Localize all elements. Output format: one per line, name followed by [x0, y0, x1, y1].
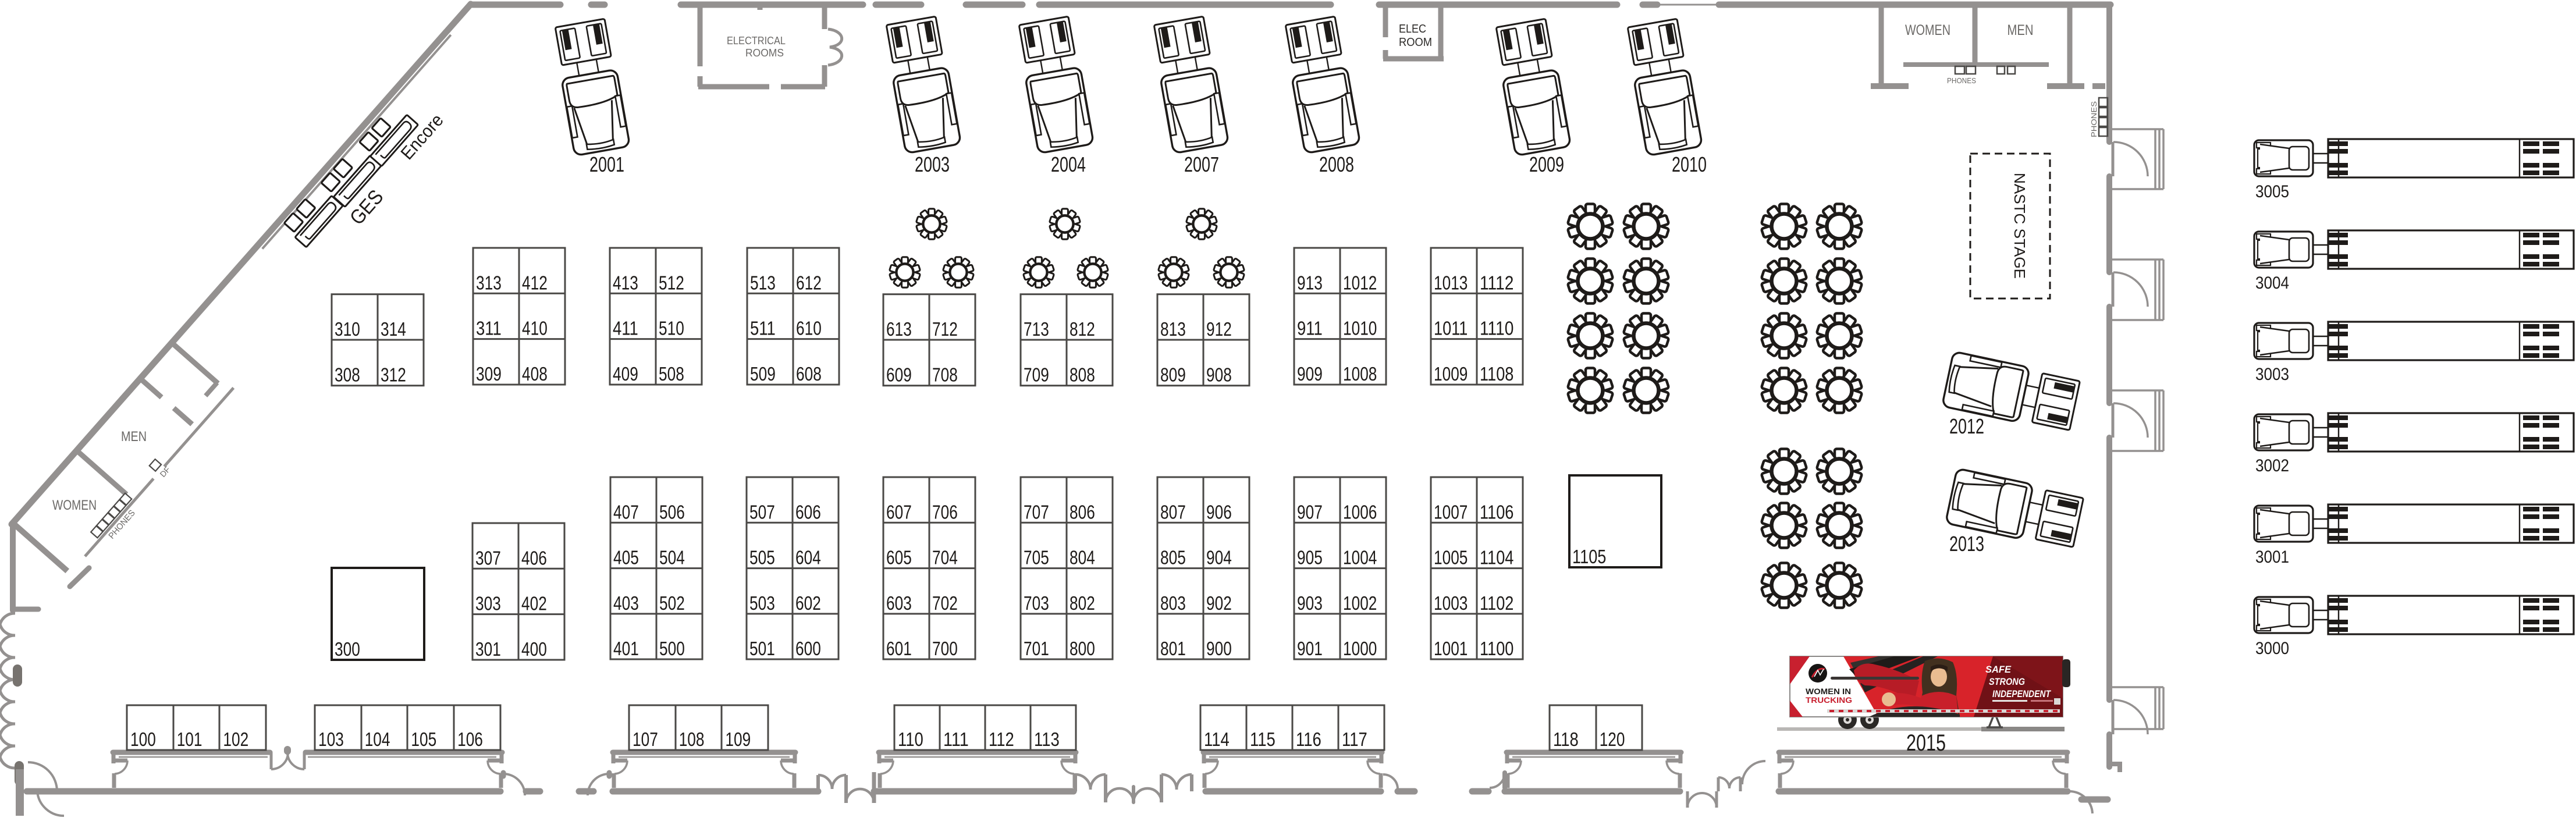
svg-text:601: 601 [886, 638, 912, 659]
svg-text:2003: 2003 [915, 152, 950, 176]
svg-text:604: 604 [795, 547, 821, 568]
svg-text:300: 300 [335, 638, 360, 660]
svg-text:812: 812 [1070, 318, 1095, 340]
svg-text:2001: 2001 [589, 152, 624, 176]
svg-text:907: 907 [1297, 501, 1323, 523]
svg-text:813: 813 [1160, 318, 1186, 340]
svg-text:806: 806 [1070, 501, 1095, 523]
svg-text:600: 600 [795, 638, 821, 659]
svg-text:407: 407 [613, 501, 639, 523]
svg-text:1108: 1108 [1480, 363, 1513, 385]
svg-text:311: 311 [476, 318, 502, 339]
svg-text:612: 612 [796, 272, 822, 293]
svg-text:912: 912 [1206, 318, 1232, 340]
svg-text:3000: 3000 [2255, 639, 2289, 658]
svg-text:511: 511 [750, 318, 776, 339]
svg-text:112: 112 [989, 728, 1014, 750]
svg-text:905: 905 [1297, 547, 1323, 568]
svg-text:801: 801 [1160, 638, 1186, 659]
svg-text:1104: 1104 [1480, 547, 1513, 568]
svg-text:504: 504 [659, 547, 685, 568]
svg-text:406: 406 [521, 547, 547, 568]
svg-text:510: 510 [659, 318, 684, 339]
svg-text:WOMEN: WOMEN [52, 497, 97, 513]
svg-text:503: 503 [749, 592, 775, 614]
svg-text:902: 902 [1206, 592, 1232, 614]
svg-text:118: 118 [1553, 728, 1579, 750]
svg-text:1100: 1100 [1480, 638, 1513, 659]
svg-text:101: 101 [177, 728, 202, 750]
svg-text:609: 609 [886, 364, 912, 385]
svg-text:1012: 1012 [1343, 272, 1377, 293]
svg-text:913: 913 [1297, 272, 1323, 293]
svg-text:606: 606 [795, 501, 821, 523]
svg-text:WOMEN IN: WOMEN IN [1806, 687, 1851, 696]
svg-text:402: 402 [521, 593, 547, 614]
svg-text:ROOMS: ROOMS [745, 47, 784, 59]
svg-text:408: 408 [522, 363, 548, 385]
svg-text:1009: 1009 [1434, 363, 1468, 385]
svg-text:1002: 1002 [1343, 592, 1377, 614]
svg-text:TRUCKING: TRUCKING [1806, 695, 1852, 705]
svg-text:705: 705 [1024, 547, 1049, 568]
svg-text:607: 607 [886, 501, 912, 523]
svg-text:901: 901 [1297, 638, 1323, 659]
svg-text:1001: 1001 [1434, 638, 1468, 659]
svg-text:106: 106 [457, 728, 483, 750]
svg-text:805: 805 [1160, 547, 1186, 568]
svg-text:120: 120 [1600, 728, 1625, 750]
svg-text:808: 808 [1070, 364, 1095, 385]
svg-text:114: 114 [1204, 728, 1230, 750]
svg-text:2013: 2013 [1949, 532, 1984, 556]
svg-text:1000: 1000 [1343, 638, 1377, 659]
svg-text:MEN: MEN [2007, 22, 2034, 38]
svg-text:1004: 1004 [1343, 547, 1377, 568]
svg-text:403: 403 [613, 592, 639, 614]
svg-text:1011: 1011 [1434, 318, 1468, 339]
svg-text:314: 314 [381, 318, 406, 340]
svg-text:1006: 1006 [1343, 501, 1377, 523]
svg-text:411: 411 [613, 318, 638, 339]
svg-text:412: 412 [522, 272, 548, 293]
svg-text:309: 309 [476, 363, 502, 385]
svg-text:1008: 1008 [1343, 363, 1377, 385]
svg-text:2010: 2010 [1672, 152, 1707, 176]
svg-text:702: 702 [932, 592, 958, 614]
svg-text:1105: 1105 [1572, 546, 1606, 567]
svg-text:3002: 3002 [2255, 456, 2289, 475]
svg-text:803: 803 [1160, 592, 1186, 614]
svg-text:102: 102 [223, 728, 248, 750]
svg-text:2015: 2015 [1906, 730, 1946, 756]
svg-text:ELEC: ELEC [1399, 23, 1426, 35]
svg-text:409: 409 [613, 363, 638, 385]
svg-text:708: 708 [932, 364, 958, 385]
svg-text:712: 712 [932, 318, 958, 340]
svg-text:410: 410 [522, 318, 548, 339]
svg-text:513: 513 [750, 272, 776, 293]
svg-text:512: 512 [659, 272, 684, 293]
svg-text:NASTC STAGE: NASTC STAGE [2011, 173, 2028, 279]
svg-text:1112: 1112 [1480, 272, 1513, 293]
svg-text:110: 110 [898, 728, 923, 750]
svg-text:ROOM: ROOM [1399, 36, 1432, 49]
svg-text:713: 713 [1024, 318, 1049, 340]
svg-text:2009: 2009 [1529, 152, 1564, 176]
svg-text:613: 613 [886, 318, 912, 340]
svg-text:1110: 1110 [1480, 318, 1513, 339]
svg-text:1013: 1013 [1434, 272, 1468, 293]
svg-text:303: 303 [475, 593, 501, 614]
svg-text:117: 117 [1342, 728, 1367, 750]
svg-text:100: 100 [130, 728, 156, 750]
svg-text:PHONES: PHONES [2090, 101, 2098, 137]
svg-text:111: 111 [943, 728, 969, 750]
svg-text:1003: 1003 [1434, 592, 1468, 614]
svg-text:1106: 1106 [1480, 501, 1513, 523]
svg-text:2008: 2008 [1319, 152, 1354, 176]
svg-text:WOMEN: WOMEN [1905, 22, 1950, 38]
svg-text:104: 104 [365, 728, 390, 750]
svg-text:313: 313 [476, 272, 502, 293]
svg-text:1102: 1102 [1480, 592, 1513, 614]
svg-text:911: 911 [1297, 318, 1323, 339]
svg-text:509: 509 [750, 363, 776, 385]
svg-text:506: 506 [659, 501, 685, 523]
svg-text:400: 400 [521, 638, 547, 660]
svg-text:501: 501 [749, 638, 775, 659]
svg-text:802: 802 [1070, 592, 1095, 614]
svg-text:STRONG: STRONG [1989, 676, 2025, 687]
svg-text:3001: 3001 [2255, 548, 2289, 567]
svg-text:2007: 2007 [1184, 152, 1219, 176]
svg-text:704: 704 [932, 547, 958, 568]
svg-text:908: 908 [1206, 364, 1232, 385]
svg-text:804: 804 [1070, 547, 1095, 568]
svg-text:301: 301 [475, 638, 501, 660]
svg-text:308: 308 [335, 364, 360, 385]
svg-text:PHONES: PHONES [1947, 76, 1976, 85]
svg-text:413: 413 [613, 272, 638, 293]
svg-text:605: 605 [886, 547, 912, 568]
svg-text:507: 507 [749, 501, 775, 523]
svg-text:3003: 3003 [2255, 365, 2289, 384]
svg-text:307: 307 [475, 547, 501, 568]
svg-text:INDEPENDENT: INDEPENDENT [1992, 688, 2051, 699]
svg-text:610: 610 [796, 318, 822, 339]
svg-text:505: 505 [749, 547, 775, 568]
svg-text:909: 909 [1297, 363, 1323, 385]
svg-text:3004: 3004 [2255, 273, 2289, 293]
svg-text:ELECTRICAL: ELECTRICAL [727, 35, 786, 47]
svg-text:401: 401 [613, 638, 639, 659]
svg-text:608: 608 [796, 363, 822, 385]
svg-text:502: 502 [659, 592, 685, 614]
svg-text:312: 312 [381, 364, 406, 385]
svg-text:310: 310 [335, 318, 360, 340]
svg-text:108: 108 [679, 728, 705, 750]
svg-text:701: 701 [1024, 638, 1049, 659]
svg-text:113: 113 [1034, 728, 1060, 750]
svg-text:1010: 1010 [1343, 318, 1377, 339]
svg-text:MEN: MEN [121, 429, 147, 445]
svg-text:904: 904 [1206, 547, 1232, 568]
svg-text:700: 700 [932, 638, 958, 659]
svg-text:707: 707 [1024, 501, 1049, 523]
svg-text:1005: 1005 [1434, 547, 1468, 568]
svg-text:2004: 2004 [1051, 152, 1086, 176]
svg-text:103: 103 [318, 728, 344, 750]
svg-text:508: 508 [659, 363, 684, 385]
svg-text:809: 809 [1160, 364, 1186, 385]
svg-text:109: 109 [725, 728, 751, 750]
svg-text:903: 903 [1297, 592, 1323, 614]
svg-text:SAFE: SAFE [1985, 664, 2012, 675]
svg-text:602: 602 [795, 592, 821, 614]
svg-text:405: 405 [613, 547, 639, 568]
svg-text:800: 800 [1070, 638, 1095, 659]
svg-text:603: 603 [886, 592, 912, 614]
svg-text:107: 107 [633, 728, 658, 750]
svg-text:900: 900 [1206, 638, 1232, 659]
svg-text:116: 116 [1296, 728, 1321, 750]
svg-text:2012: 2012 [1949, 414, 1984, 438]
svg-text:500: 500 [659, 638, 685, 659]
svg-text:105: 105 [411, 728, 436, 750]
svg-text:709: 709 [1024, 364, 1049, 385]
svg-text:3005: 3005 [2255, 182, 2289, 201]
svg-text:1007: 1007 [1434, 501, 1468, 523]
svg-text:906: 906 [1206, 501, 1232, 523]
svg-text:703: 703 [1024, 592, 1049, 614]
svg-text:706: 706 [932, 501, 958, 523]
svg-text:115: 115 [1250, 728, 1275, 750]
svg-text:807: 807 [1160, 501, 1186, 523]
